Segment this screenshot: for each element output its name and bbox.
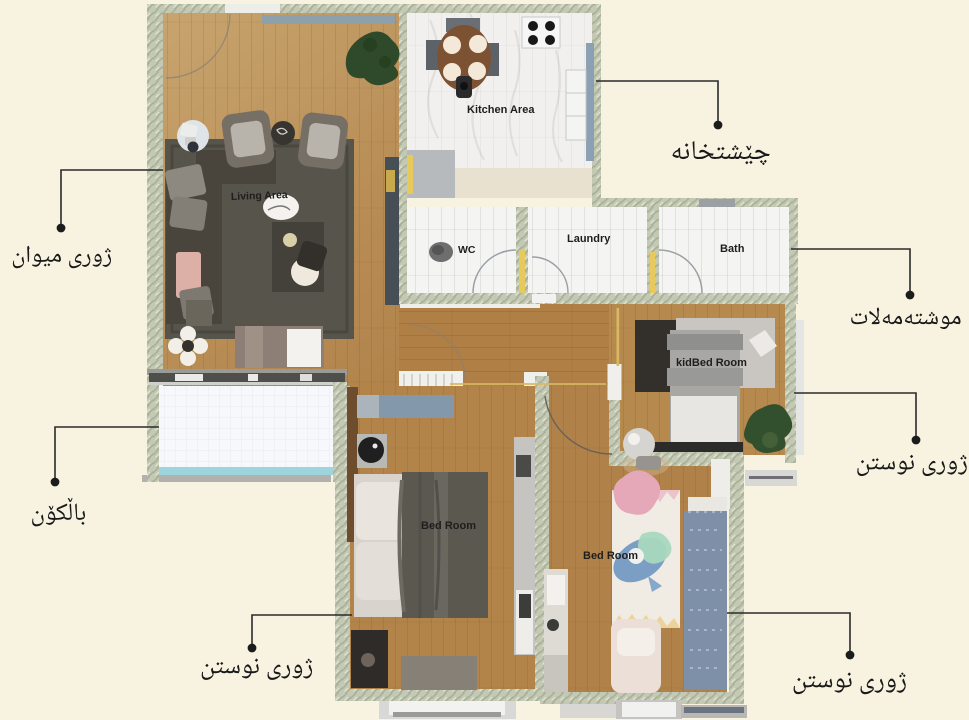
svg-text:Laundry: Laundry (567, 233, 611, 245)
svg-text:kidBed Room: kidBed Room (676, 357, 747, 369)
svg-text:Bed Room: Bed Room (421, 520, 476, 532)
svg-text:Kitchen Area: Kitchen Area (467, 104, 535, 116)
svg-text:Bath: Bath (720, 243, 745, 255)
svg-text:WC: WC (458, 244, 476, 256)
svg-text:Living Area: Living Area (231, 189, 288, 203)
svg-text:Bed Room: Bed Room (583, 550, 638, 562)
